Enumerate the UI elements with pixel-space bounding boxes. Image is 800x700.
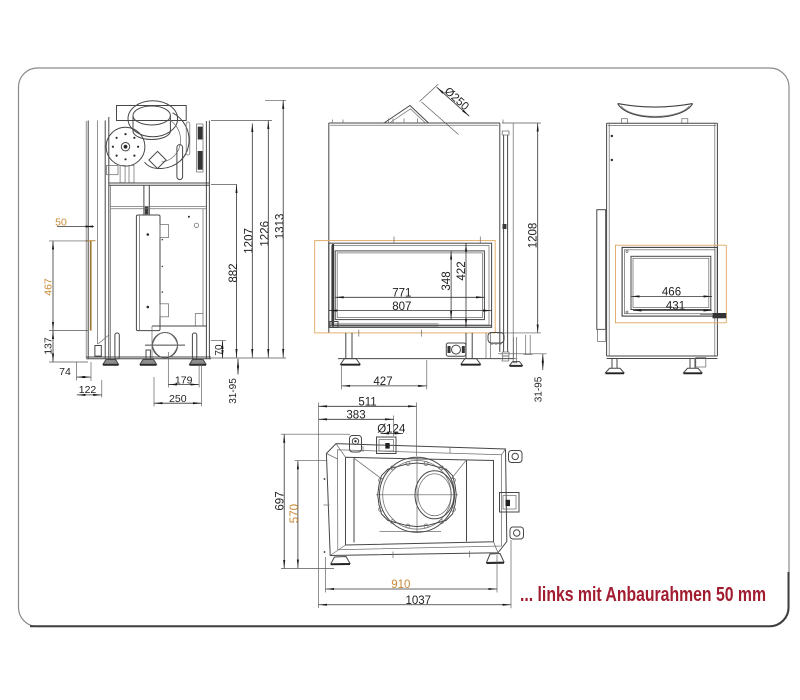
svg-text:31-95: 31-95 xyxy=(228,378,239,404)
svg-text:431: 431 xyxy=(666,301,685,313)
svg-text:570: 570 xyxy=(289,504,301,523)
svg-text:771: 771 xyxy=(392,288,411,300)
svg-text:31-95: 31-95 xyxy=(533,376,544,402)
svg-text:427: 427 xyxy=(373,376,392,388)
svg-text:74: 74 xyxy=(59,366,71,378)
svg-text:1207: 1207 xyxy=(243,228,255,254)
svg-text:422: 422 xyxy=(456,261,468,280)
svg-text:383: 383 xyxy=(346,409,365,421)
svg-text:137: 137 xyxy=(42,337,54,355)
svg-text:1037: 1037 xyxy=(406,595,432,607)
svg-text:466: 466 xyxy=(662,287,681,299)
svg-text:910: 910 xyxy=(391,579,410,591)
svg-text:697: 697 xyxy=(275,491,287,510)
svg-text:807: 807 xyxy=(392,301,411,313)
svg-text:467: 467 xyxy=(43,278,55,296)
svg-text:122: 122 xyxy=(79,384,97,396)
svg-text:1313: 1313 xyxy=(274,214,286,240)
svg-text:348: 348 xyxy=(441,271,453,290)
svg-text:1208: 1208 xyxy=(528,223,540,249)
svg-text:1226: 1226 xyxy=(260,221,272,247)
svg-text:511: 511 xyxy=(358,396,376,408)
svg-text:... links mit Anbaurahmen 50 m: ... links mit Anbaurahmen 50 mm xyxy=(520,584,766,606)
svg-text:882: 882 xyxy=(228,263,240,282)
svg-text:70: 70 xyxy=(214,344,225,356)
